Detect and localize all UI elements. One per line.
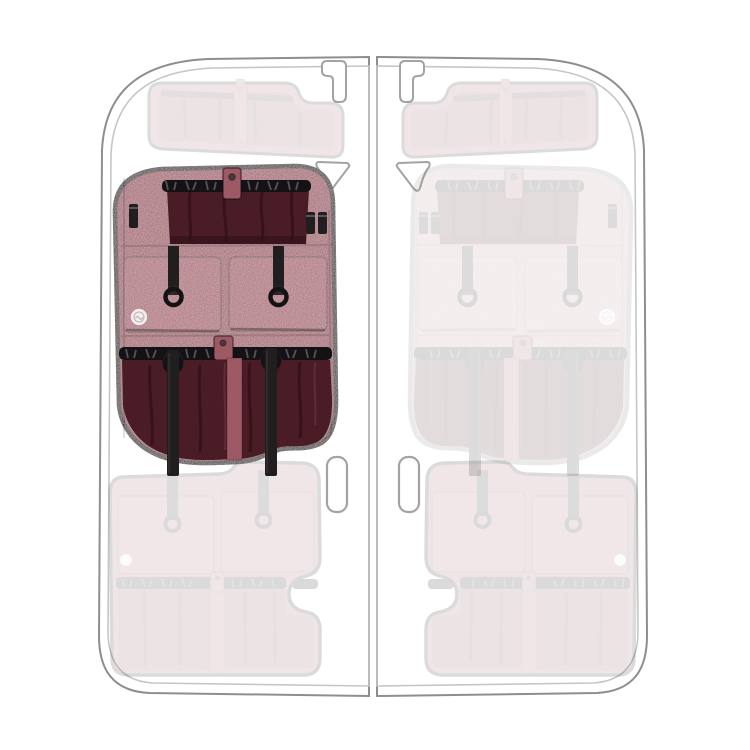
left-middle-panel-selected[interactable] xyxy=(115,166,336,476)
right-middle-panel[interactable] xyxy=(410,166,631,476)
right-door xyxy=(377,57,647,696)
product-preview-image xyxy=(0,0,750,750)
van-doors-illustration xyxy=(0,0,750,750)
right-upper-panel[interactable] xyxy=(403,79,597,157)
right-lower-panel[interactable] xyxy=(426,462,636,675)
left-door xyxy=(99,57,369,696)
left-upper-panel[interactable] xyxy=(149,79,343,157)
left-lower-panel[interactable] xyxy=(110,462,320,675)
